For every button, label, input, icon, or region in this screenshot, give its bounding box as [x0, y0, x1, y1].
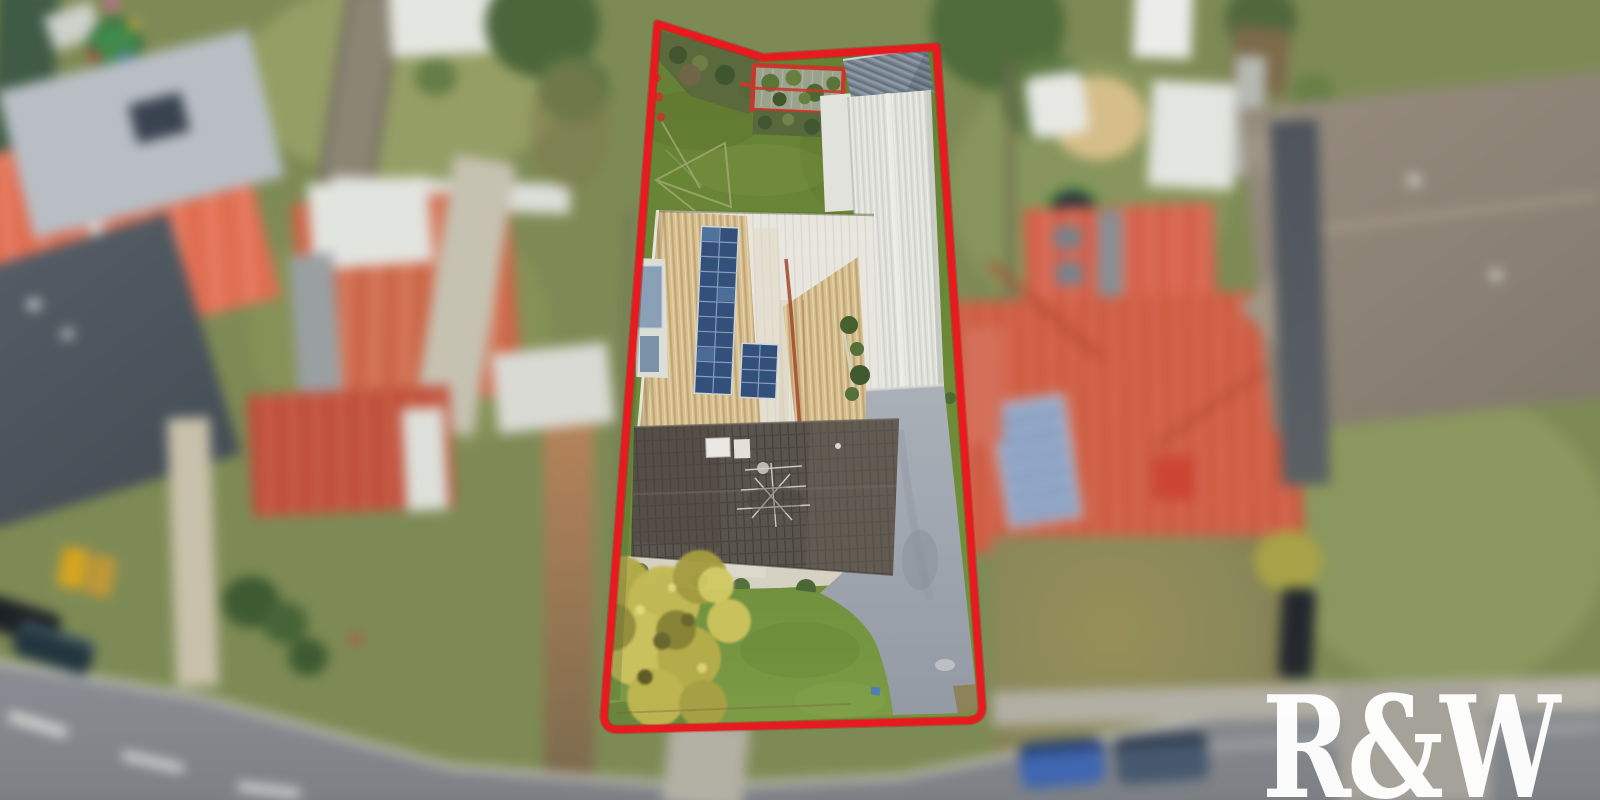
aerial-photo: R&W [0, 0, 1600, 800]
satellite-dish [757, 462, 769, 474]
blue-item-on-lawn [871, 687, 881, 696]
solar-array-long [694, 226, 738, 394]
main-house-roof [631, 419, 899, 575]
roof-skylights [706, 437, 751, 460]
agency-watermark: R&W [1262, 686, 1557, 800]
solar-array-small [740, 343, 778, 399]
